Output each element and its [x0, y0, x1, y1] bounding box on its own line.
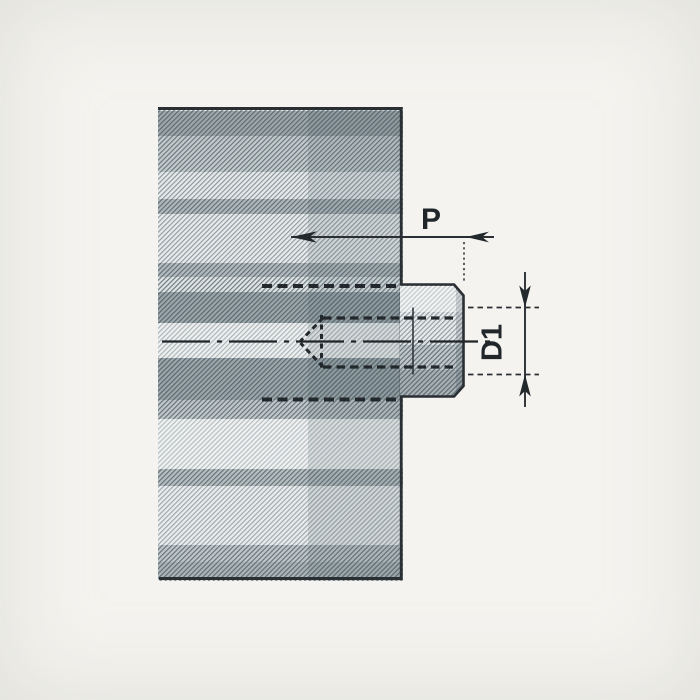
dimension-d1-label: D1: [477, 324, 509, 361]
dimension-d1: D1: [468, 272, 539, 407]
roller-body: [158, 107, 403, 581]
shading-band: [400, 370, 464, 397]
dimension-p-label: P: [421, 203, 441, 236]
shading-band: [400, 312, 464, 340]
shading-band: [400, 286, 464, 312]
technical-drawing: P D1: [0, 0, 700, 700]
body-shading: [158, 107, 403, 581]
scanned-catalog-page: P D1: [0, 0, 700, 700]
